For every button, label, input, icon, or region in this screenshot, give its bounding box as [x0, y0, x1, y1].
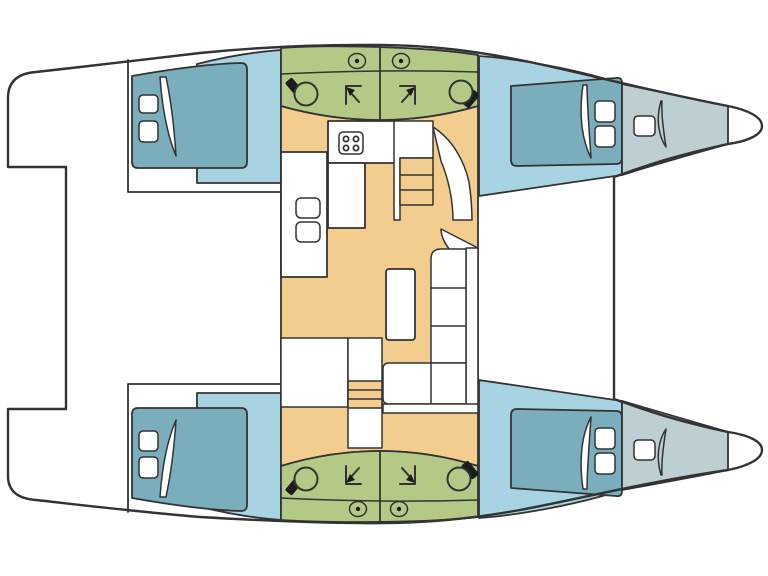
- pillow: [139, 431, 158, 451]
- pillow: [139, 457, 158, 478]
- stove-top: [339, 132, 363, 154]
- porthole-icon: [391, 502, 408, 517]
- floor-plan: [0, 0, 768, 576]
- toilet-bowl: [448, 468, 471, 491]
- plan-root: [8, 45, 762, 523]
- toilet-bowl: [295, 468, 318, 491]
- port-heads: [281, 45, 480, 120]
- sink-basin: [296, 222, 320, 242]
- salon-table: [386, 269, 415, 340]
- sofa-backrest-right: [466, 248, 478, 405]
- catamaran-plan-svg: [0, 0, 768, 576]
- porthole-icon: [393, 54, 410, 69]
- sofa-seats-vertical: [431, 249, 466, 363]
- sink-basin: [296, 198, 320, 218]
- pillow: [139, 95, 158, 113]
- stair-treads: [348, 381, 382, 408]
- galley-counter-column: [328, 163, 365, 228]
- porthole-dot: [397, 507, 401, 511]
- toilet-bowl: [295, 83, 318, 106]
- pillow: [595, 453, 615, 474]
- pillow: [595, 126, 615, 147]
- pillow: [595, 428, 615, 449]
- starboard-heads: [281, 451, 479, 522]
- port-forward-cabin: [479, 56, 728, 196]
- double-bed: [132, 63, 247, 168]
- porthole-dot: [356, 507, 360, 511]
- sofa-seats-horizontal: [383, 363, 466, 404]
- porthole-icon: [349, 54, 366, 69]
- stove-icon: [339, 132, 363, 154]
- porthole-dot: [399, 59, 403, 63]
- toilet-bowl: [450, 81, 473, 104]
- porthole-icon: [350, 502, 367, 517]
- deck-hatch: [634, 116, 655, 136]
- sofa-backrest-bottom: [383, 404, 478, 413]
- storage-unit: [281, 338, 348, 407]
- porthole-dot: [355, 59, 359, 63]
- stair-treads: [400, 158, 433, 205]
- starboard-forward-cabin: [479, 380, 728, 518]
- pillow: [595, 101, 615, 122]
- deck-hatch: [634, 440, 655, 460]
- pillow: [139, 121, 158, 142]
